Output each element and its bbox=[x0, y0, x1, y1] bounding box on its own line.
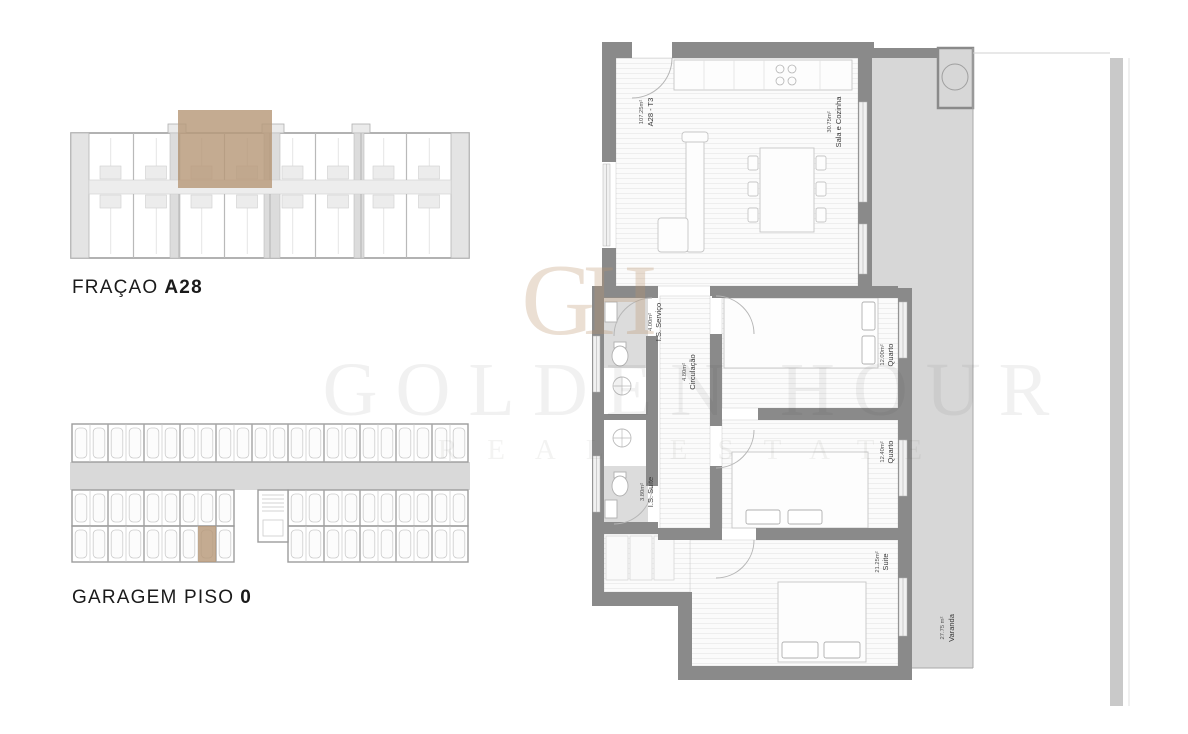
chair bbox=[816, 208, 826, 222]
building-overview-plan bbox=[70, 106, 470, 260]
floorplan-sheet: FRAÇAOA28 GARAGEM PISO0 bbox=[0, 0, 1188, 734]
label-is-servico-area: 4.00m² bbox=[648, 313, 654, 331]
label-suite-area: 21.25m² bbox=[875, 551, 881, 572]
label-quarto1-area: 12.00m² bbox=[880, 344, 886, 365]
sofa bbox=[686, 140, 704, 252]
chair bbox=[748, 182, 758, 196]
garagem-prefix: GARAGEM PISO bbox=[72, 587, 234, 608]
label-quarto2-name: Quarto bbox=[886, 441, 895, 464]
lot-boundary bbox=[973, 53, 1129, 706]
pillow bbox=[862, 302, 875, 330]
label-sala-area: 30.75m² bbox=[827, 111, 833, 132]
sofa-chaise bbox=[658, 218, 688, 252]
building-end-right bbox=[451, 133, 469, 258]
pillow bbox=[862, 336, 875, 364]
label-varanda-name: Varanda bbox=[947, 613, 956, 642]
chair bbox=[748, 156, 758, 170]
bed-quarto1 bbox=[724, 298, 878, 368]
garagem-value: 0 bbox=[240, 587, 252, 608]
toilet bbox=[612, 476, 628, 496]
label-quarto1-name: Quarto bbox=[886, 344, 895, 367]
pillow bbox=[746, 510, 780, 524]
chair bbox=[748, 208, 758, 222]
fracao-label: FRAÇAOA28 bbox=[72, 277, 203, 299]
wardrobe bbox=[654, 536, 674, 580]
garagem-label: GARAGEM PISO0 bbox=[72, 587, 252, 609]
label-sala-name: Sala e Cozinha bbox=[834, 96, 843, 148]
wardrobe bbox=[630, 536, 652, 580]
garage-stair-core bbox=[258, 490, 288, 542]
dining-table bbox=[760, 148, 814, 232]
label-circulacao-area: 4.80m² bbox=[682, 363, 688, 381]
fracao-value: A28 bbox=[164, 277, 202, 298]
highlighted-unit-a28 bbox=[178, 110, 272, 188]
boundary-bar bbox=[1110, 58, 1123, 706]
sink bbox=[605, 302, 617, 322]
pillow bbox=[782, 642, 818, 658]
unit-label-name: A28 - T3 bbox=[646, 98, 655, 127]
chair bbox=[816, 156, 826, 170]
label-is-suite-name: I.S. Suite bbox=[646, 477, 655, 507]
highlighted-parking-stall bbox=[198, 526, 216, 562]
garage-plan bbox=[70, 422, 470, 564]
label-suite-name: Suite bbox=[881, 553, 890, 570]
label-is-suite-area: 3.80m² bbox=[640, 483, 646, 501]
label-quarto2-area: 12.40m² bbox=[880, 441, 886, 462]
unit-label-area: 107.25m² bbox=[639, 100, 645, 125]
garage-lane bbox=[70, 462, 470, 490]
building-end-left bbox=[71, 133, 89, 258]
toilet bbox=[612, 346, 628, 366]
label-circulacao-name: Circulação bbox=[688, 354, 697, 389]
stair-core bbox=[354, 133, 364, 258]
label-is-servico-name: I.S. Serviço bbox=[654, 303, 663, 341]
wardrobe bbox=[606, 536, 628, 580]
pillow bbox=[824, 642, 860, 658]
kitchen-counter bbox=[674, 60, 852, 90]
fracao-prefix: FRAÇAO bbox=[72, 277, 158, 298]
stair-bump bbox=[352, 124, 370, 133]
pillow bbox=[788, 510, 822, 524]
apartment-floorplan: A28 - T3 107.25m² Sala e Cozinha 30.75m²… bbox=[590, 36, 1138, 712]
sink bbox=[605, 500, 617, 518]
label-varanda-area: 27.75 m² bbox=[940, 616, 946, 639]
chair bbox=[816, 182, 826, 196]
